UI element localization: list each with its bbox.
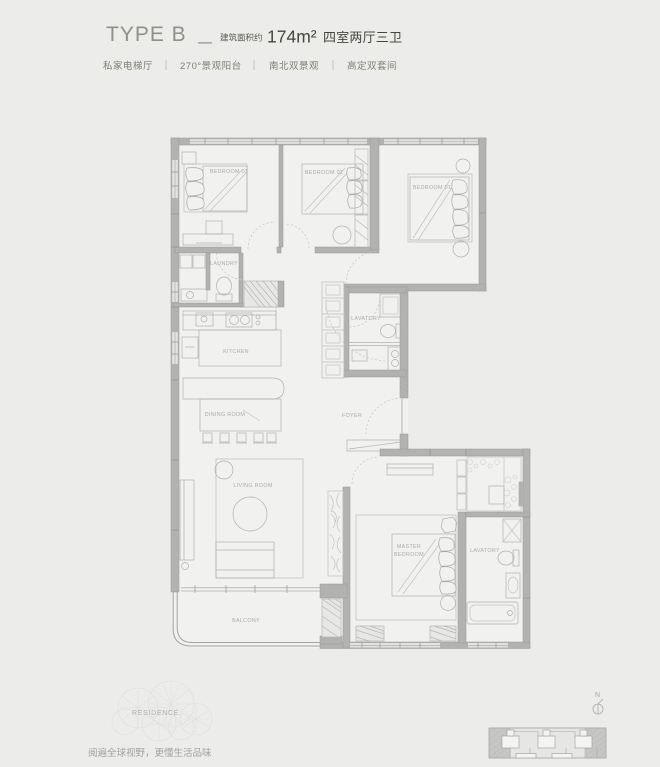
svg-text:私家电梯厅: 私家电梯厅 [103, 60, 153, 72]
svg-text:RESIDENCE: RESIDENCE [132, 710, 179, 717]
svg-text:DINING ROOM: DINING ROOM [205, 412, 246, 418]
svg-text:FOYER: FOYER [342, 413, 362, 419]
svg-text:LAUNDRY: LAUNDRY [210, 261, 238, 267]
svg-text:高定双套间: 高定双套间 [347, 60, 397, 72]
svg-text:N: N [595, 692, 600, 699]
svg-text:TYPE B: TYPE B [106, 23, 187, 46]
svg-text:四室两厅三卫: 四室两厅三卫 [323, 30, 402, 45]
svg-text:BEDROOM 01: BEDROOM 01 [413, 185, 451, 191]
svg-text:BALCONY: BALCONY [232, 618, 260, 624]
svg-text:BEDROOM 02: BEDROOM 02 [305, 170, 343, 176]
svg-text:南北双景观: 南北双景观 [269, 60, 319, 72]
svg-text:174m²: 174m² [267, 27, 317, 47]
svg-text:LAVATORY: LAVATORY [351, 316, 381, 322]
svg-text:阅遍全球视野，更懂生活品味: 阅遍全球视野，更懂生活品味 [88, 747, 212, 759]
svg-text:LIVING ROOM: LIVING ROOM [233, 483, 272, 489]
svg-text:建筑面积约: 建筑面积约 [220, 33, 263, 43]
svg-text:BEDROOM 03: BEDROOM 03 [210, 169, 248, 175]
svg-text:BEDROOM: BEDROOM [394, 552, 424, 558]
svg-text:MASTER: MASTER [397, 544, 421, 550]
svg-text:LAVATORY: LAVATORY [470, 548, 500, 554]
svg-text:KITCHEN: KITCHEN [223, 349, 249, 355]
svg-text:270°景观阳台: 270°景观阳台 [180, 60, 242, 72]
